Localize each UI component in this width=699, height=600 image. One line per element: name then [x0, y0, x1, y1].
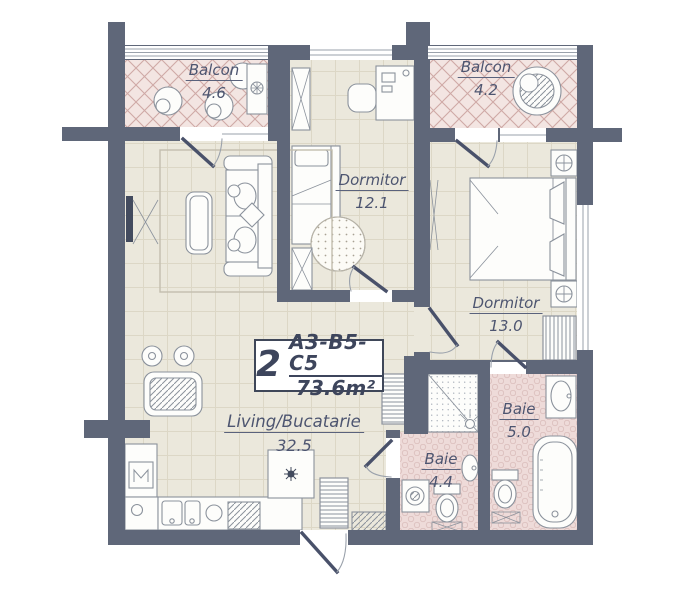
- room-area: 32.5: [224, 436, 364, 455]
- room-name: Baie: [422, 451, 461, 470]
- room-label-bedroom-small: Dormitor 12.1: [336, 170, 409, 212]
- window-bedroom-small: [310, 45, 392, 60]
- wall-bathroom-separator: [478, 372, 490, 530]
- room-label-bathroom-large: Baie 5.0: [500, 399, 539, 441]
- room-name: Balcon: [458, 59, 515, 78]
- room-area: 13.0: [470, 317, 543, 335]
- cabinet: [292, 248, 312, 290]
- room-area: 5.0: [500, 423, 539, 441]
- bar-table-top: [150, 378, 196, 410]
- wall-stub-top-mid: [406, 22, 430, 46]
- room-area: 4.2: [458, 81, 515, 99]
- shower: [428, 374, 480, 432]
- kitchen-island: [268, 450, 314, 498]
- window-bedroom-large: [577, 205, 593, 350]
- unit-details: A3-B5-C5 73.6m²: [289, 332, 382, 399]
- floor-plan: Balcon 4.6 Dormitor 12.1 Balcon 4.2 Dorm…: [0, 0, 699, 600]
- room-area: 4.6: [186, 84, 243, 102]
- round-rug: [311, 217, 365, 271]
- wall-bedroom-small-left: [277, 140, 290, 302]
- wall-stub-left-upper: [62, 127, 108, 141]
- unit-code: A3-B5-C5: [289, 332, 382, 377]
- sink: [546, 376, 576, 418]
- room-name: Dormitor: [470, 295, 543, 314]
- room-name: Balcon: [186, 62, 243, 81]
- unit-info-box: 2 A3-B5-C5 73.6m²: [254, 339, 384, 392]
- wardrobe: [292, 68, 310, 130]
- bathtub: [533, 436, 577, 528]
- unit-rooms-count: 2: [256, 349, 281, 381]
- wardrobe-rail: [543, 316, 576, 360]
- plant-icon: [251, 82, 263, 94]
- room-name: Dormitor: [336, 172, 409, 191]
- desk-chair: [348, 84, 376, 112]
- nightstand-lamp: [551, 281, 577, 307]
- tv: [126, 196, 133, 242]
- room-name: Living/Bucatarie: [224, 413, 364, 433]
- door-entrance: [300, 530, 348, 572]
- floor-plan-drawing: [0, 0, 699, 600]
- wall-bottom: [108, 530, 593, 545]
- room-area: 12.1: [336, 194, 409, 212]
- wall-stub-right: [593, 128, 622, 142]
- table-decor: [520, 74, 538, 92]
- desk: [376, 66, 414, 120]
- radiator-fins: [320, 478, 348, 528]
- room-label-living-kitchen: Living/Bucatarie 32.5: [224, 412, 364, 455]
- unit-total-area: 73.6m²: [296, 378, 375, 399]
- balcony-railing: [125, 46, 268, 59]
- wall-stub-left-lower: [84, 420, 150, 438]
- window-balcony-right: [500, 128, 546, 142]
- wall-stub-top-left: [108, 22, 125, 46]
- wall-pier: [404, 356, 428, 434]
- wall-bedroom-small-bottom: [277, 290, 414, 302]
- room-label-balcony-right: Balcon 4.2: [458, 57, 515, 99]
- lounge-chair-seat: [156, 99, 170, 113]
- entry-mat: [352, 512, 386, 532]
- room-label-balcony-left: Balcon 4.6: [186, 60, 243, 102]
- lounge-chair-seat: [207, 104, 221, 118]
- dishwasher: [228, 502, 260, 529]
- room-label-bathroom-small: Baie 4.4: [422, 449, 461, 491]
- coffee-table: [186, 192, 212, 254]
- flower-icon: [284, 467, 298, 481]
- room-area: 4.4: [422, 473, 461, 491]
- sink: [462, 455, 478, 481]
- bar-stool: [142, 346, 162, 366]
- balcony-right-furniture: [513, 67, 561, 115]
- wall-balcony-bedroom: [268, 45, 290, 128]
- nightstand-lamp: [551, 150, 577, 176]
- wall-left: [108, 45, 125, 545]
- kitchen-sink: [162, 501, 200, 525]
- room-label-bedroom-large: Dormitor 13.0: [470, 293, 543, 335]
- window-balcony-left: [222, 127, 268, 141]
- double-bed: [470, 178, 576, 280]
- room-name: Baie: [500, 401, 539, 420]
- bar-stool: [174, 346, 194, 366]
